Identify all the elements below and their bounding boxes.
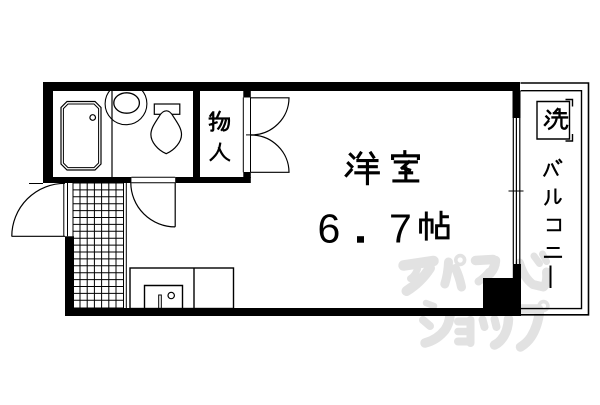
svg-text:6: 6 [318, 206, 341, 252]
svg-text:7: 7 [389, 206, 412, 252]
